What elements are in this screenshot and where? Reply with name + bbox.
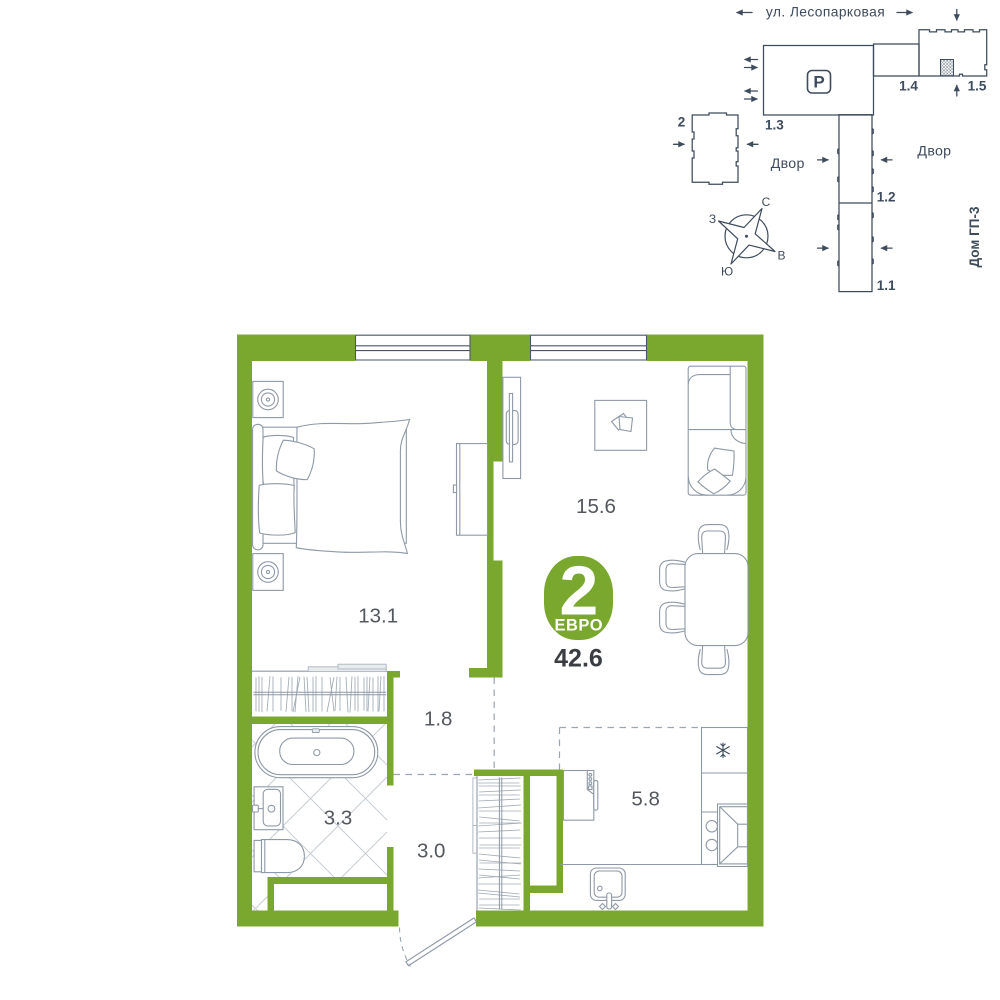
svg-text:ЕВРО: ЕВРО (555, 617, 604, 635)
svg-text:ул. Лесопарковая: ул. Лесопарковая (766, 5, 885, 20)
svg-text:3.0: 3.0 (417, 840, 446, 863)
svg-text:1.2: 1.2 (877, 190, 896, 205)
svg-text:1.3: 1.3 (765, 118, 784, 133)
svg-text:Р: Р (813, 73, 824, 92)
svg-text:15.6: 15.6 (576, 495, 616, 518)
svg-text:Двор: Двор (771, 156, 805, 172)
svg-text:В: В (777, 249, 785, 263)
svg-text:С: С (762, 195, 771, 209)
svg-text:42.6: 42.6 (554, 645, 603, 673)
svg-text:Двор: Двор (917, 144, 951, 160)
svg-text:3.3: 3.3 (324, 807, 353, 830)
svg-text:1.8: 1.8 (424, 708, 453, 731)
svg-text:13.1: 13.1 (358, 605, 398, 628)
svg-text:Дом ГП-3: Дом ГП-3 (967, 206, 982, 267)
svg-text:Ю: Ю (721, 265, 733, 279)
svg-text:З: З (709, 212, 716, 226)
svg-text:5.8: 5.8 (631, 788, 660, 811)
svg-text:1.4: 1.4 (899, 79, 918, 94)
svg-text:1.5: 1.5 (968, 79, 987, 94)
svg-text:1.1: 1.1 (877, 278, 896, 293)
svg-text:2: 2 (678, 115, 686, 130)
